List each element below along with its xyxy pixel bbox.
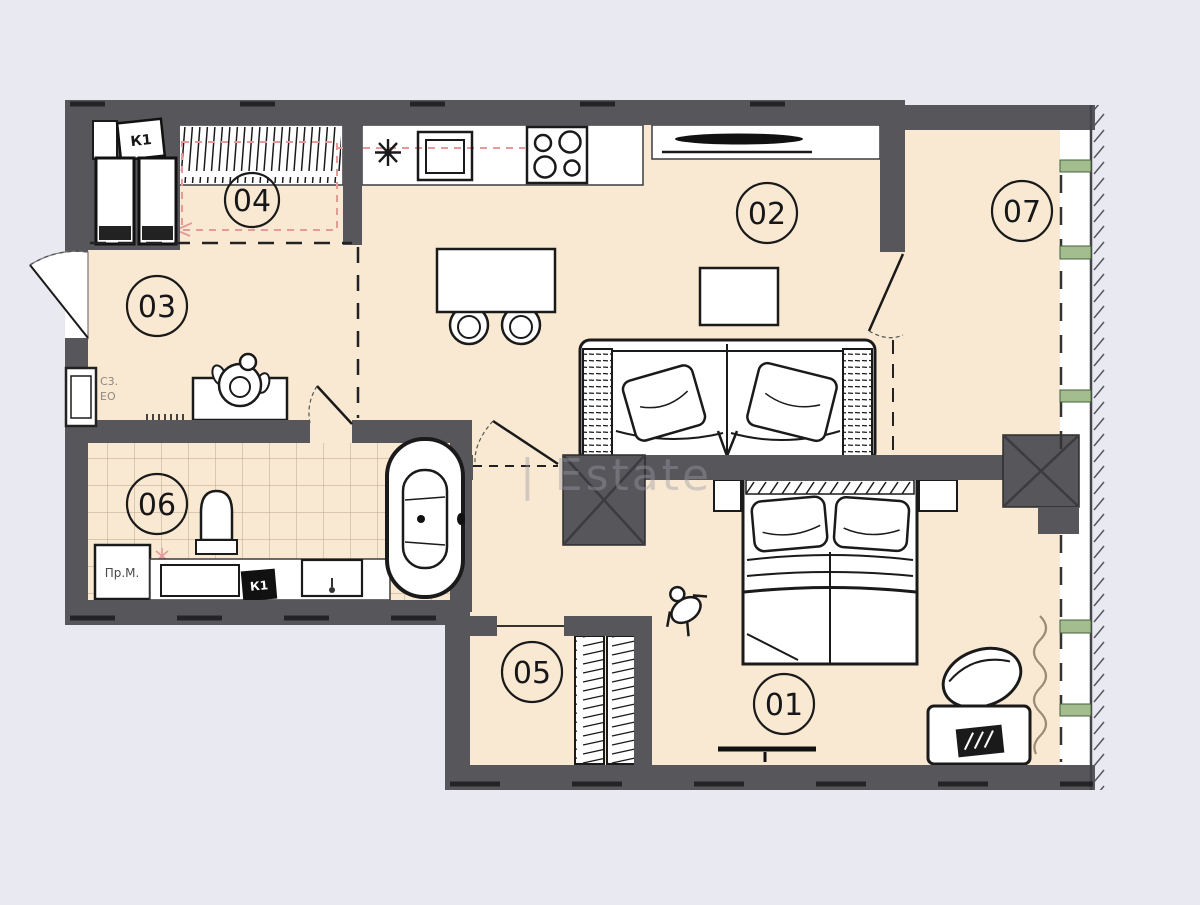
k1-bathroom-label: К1	[249, 578, 268, 594]
window-green-pier	[1060, 704, 1091, 716]
wall-top-balcony	[880, 105, 1095, 130]
wall-03-06-a	[88, 420, 310, 443]
entrance-door	[30, 251, 88, 338]
svg-text:05: 05	[513, 656, 551, 691]
kitchen-counter	[362, 125, 643, 185]
sofa-armrest-left	[583, 349, 612, 457]
nightstand-left	[714, 480, 741, 511]
wall-left-upper	[65, 100, 88, 252]
nightstand-right	[919, 480, 957, 511]
wall-bottom-left	[65, 600, 460, 625]
k1-top-label: К1	[130, 132, 153, 150]
bathtub	[387, 439, 465, 597]
dining-table	[437, 249, 555, 312]
svg-text:04: 04	[233, 184, 271, 219]
floor-plan-canvas: Пр.М. К1	[0, 0, 1200, 905]
bed-pillow-left	[751, 496, 828, 552]
panel-label-2: ЕО	[100, 390, 116, 403]
floor-balcony	[905, 130, 1062, 465]
wall-02-07	[880, 125, 905, 252]
wall-05-01	[634, 616, 652, 765]
k1-box-top: К1	[117, 119, 165, 160]
svg-text:02: 02	[748, 197, 786, 232]
panel-label-1: С3.	[100, 375, 118, 388]
drain	[417, 515, 425, 523]
bed	[743, 478, 917, 664]
wall-kitchen-04	[343, 100, 362, 245]
svg-text:07: 07	[1003, 195, 1041, 230]
floor-plan: Пр.М. К1	[0, 0, 1200, 905]
shaft-k1-block: К1	[88, 100, 180, 250]
sofa-armrest-right	[843, 349, 872, 457]
duct-right	[139, 158, 176, 244]
duct-small	[93, 121, 117, 159]
faucet	[457, 513, 465, 525]
window-green-pier	[1060, 160, 1091, 172]
wardrobe-04	[177, 125, 343, 185]
watermark: | Estate	[520, 450, 712, 501]
toilet-icon	[196, 491, 237, 554]
svg-text:06: 06	[138, 488, 176, 523]
wall-05-a	[460, 616, 497, 636]
coffee-table	[700, 268, 778, 325]
window-green-pier	[1060, 620, 1091, 633]
headboard	[746, 480, 914, 494]
sofa	[580, 340, 875, 462]
wall-under-balcony	[880, 455, 1005, 480]
svg-text:01: 01	[765, 688, 803, 723]
k1-box-bathroom: К1	[241, 569, 277, 602]
bathroom-sink-icon	[302, 560, 362, 596]
svg-text:03: 03	[138, 290, 176, 325]
laptop-icon	[956, 725, 1005, 758]
desk-01	[928, 706, 1030, 764]
window-green-pier	[1060, 246, 1091, 259]
bed-pillow-right	[833, 497, 909, 552]
washing-machine: Пр.М.	[95, 545, 150, 599]
bathroom-counter: К1	[150, 559, 390, 601]
duct-left	[96, 158, 134, 244]
outer-hatch	[1092, 105, 1107, 790]
person-head	[240, 354, 256, 370]
washing-machine-label: Пр.М.	[105, 566, 140, 580]
window-green-pier	[1060, 390, 1091, 402]
wall-bottom	[445, 765, 1095, 790]
